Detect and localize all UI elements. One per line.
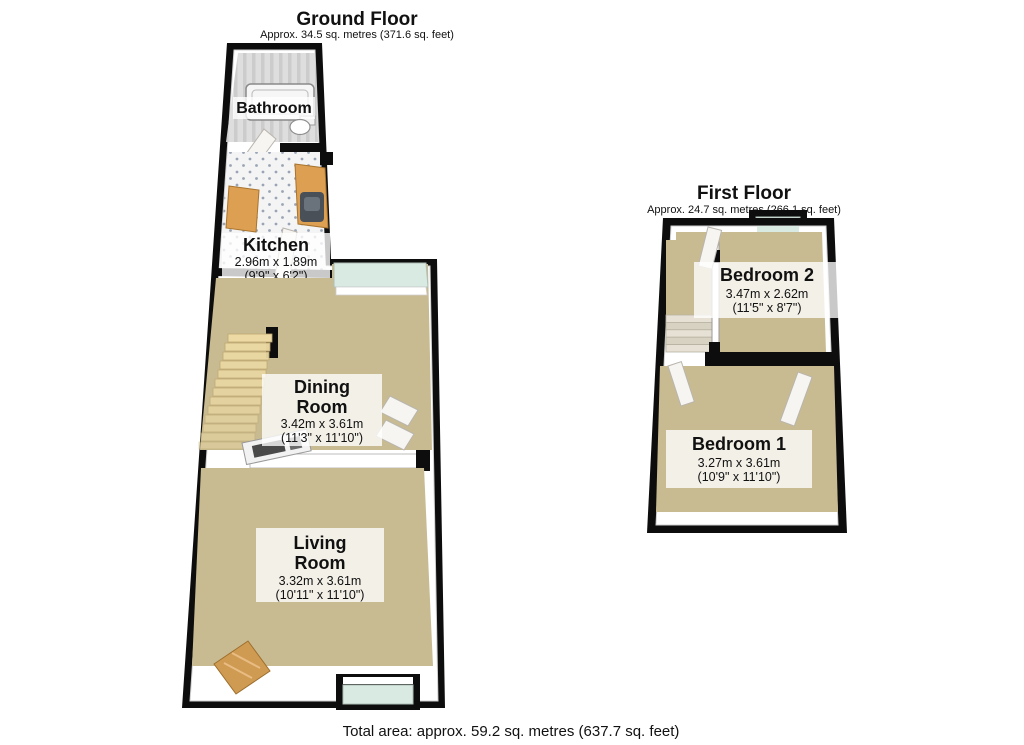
total-area-text: Total area: approx. 59.2 sq. metres (637… bbox=[343, 723, 680, 740]
toilet bbox=[290, 120, 310, 135]
dining-living-wall-stub bbox=[416, 450, 430, 471]
living-bay-window-glass bbox=[343, 685, 413, 704]
bedroom2-dim-imperial: (11'5" x 8'7") bbox=[732, 301, 801, 315]
kitchen-dim-metric: 2.96m x 1.89m bbox=[235, 255, 318, 269]
bathroom-label: Bathroom bbox=[233, 97, 315, 119]
dining-name-line1: Dining bbox=[294, 377, 350, 397]
ground-floor-title: Ground Floor bbox=[296, 9, 418, 30]
dining-name-line2: Room bbox=[297, 397, 348, 417]
ground-floor-plan: Ground Floor Approx. 34.5 sq. metres (37… bbox=[182, 9, 454, 710]
dining-dim-imperial: (11'3" x 11'10") bbox=[281, 431, 363, 445]
first-floor-subtitle: Approx. 24.7 sq. metres (266.1 sq. feet) bbox=[647, 204, 841, 216]
bedroom2-label: Bedroom 2 3.47m x 2.62m (11'5" x 8'7") bbox=[694, 262, 840, 318]
bedroom-divider-wall bbox=[705, 352, 838, 366]
living-label: Living Room 3.32m x 3.61m (10'11" x 11'1… bbox=[256, 528, 384, 602]
bedroom1-name: Bedroom 1 bbox=[692, 434, 786, 454]
living-dim-imperial: (10'11" x 11'10") bbox=[276, 588, 365, 602]
living-bay-window-sill bbox=[343, 677, 413, 684]
living-dim-metric: 3.32m x 3.61m bbox=[279, 574, 362, 588]
living-name-line2: Room bbox=[295, 553, 346, 573]
kitchen-counter-left bbox=[226, 186, 259, 232]
kitchen-sink-basin bbox=[304, 197, 320, 211]
ground-floor-subtitle: Approx. 34.5 sq. metres (371.6 sq. feet) bbox=[260, 29, 454, 41]
bedroom-1: Bedroom 1 3.27m x 3.61m (10'9" x 11'10") bbox=[656, 362, 838, 512]
dining-bay-window-sill bbox=[336, 287, 427, 295]
dining-label: Dining Room 3.42m x 3.61m (11'3" x 11'10… bbox=[262, 374, 382, 446]
dining-room: Dining Room 3.42m x 3.61m (11'3" x 11'10… bbox=[199, 263, 432, 471]
floorplan-canvas: Ground Floor Approx. 34.5 sq. metres (37… bbox=[0, 0, 1024, 745]
kitchen-name: Kitchen bbox=[243, 235, 309, 255]
dining-bay-window-glass bbox=[334, 263, 428, 287]
living-bay-window bbox=[336, 674, 420, 710]
bedroom1-label: Bedroom 1 3.27m x 3.61m (10'9" x 11'10") bbox=[666, 430, 812, 488]
floorplan-page: Ground Floor Approx. 34.5 sq. metres (37… bbox=[0, 0, 1024, 745]
dining-dim-metric: 3.42m x 3.61m bbox=[281, 417, 364, 431]
kitchen-label: Kitchen 2.96m x 1.89m (9'9" x 6'2") bbox=[222, 233, 330, 285]
first-floor-plan: First Floor Approx. 24.7 sq. metres (266… bbox=[647, 183, 847, 533]
first-floor-title: First Floor bbox=[697, 183, 792, 204]
bathroom-name: Bathroom bbox=[236, 100, 312, 117]
bathroom-kitchen-wall bbox=[280, 143, 322, 152]
bedroom1-dim-metric: 3.27m x 3.61m bbox=[698, 456, 781, 470]
living-name-line1: Living bbox=[294, 533, 347, 553]
bedroom2-dim-metric: 3.47m x 2.62m bbox=[726, 287, 809, 301]
bedroom2-name: Bedroom 2 bbox=[720, 265, 814, 285]
kitchen-wall-stub bbox=[320, 152, 333, 165]
bedroom1-dim-imperial: (10'9" x 11'10") bbox=[698, 470, 781, 484]
bedroom-2: Bedroom 2 3.47m x 2.62m (11'5" x 8'7") bbox=[666, 227, 840, 354]
